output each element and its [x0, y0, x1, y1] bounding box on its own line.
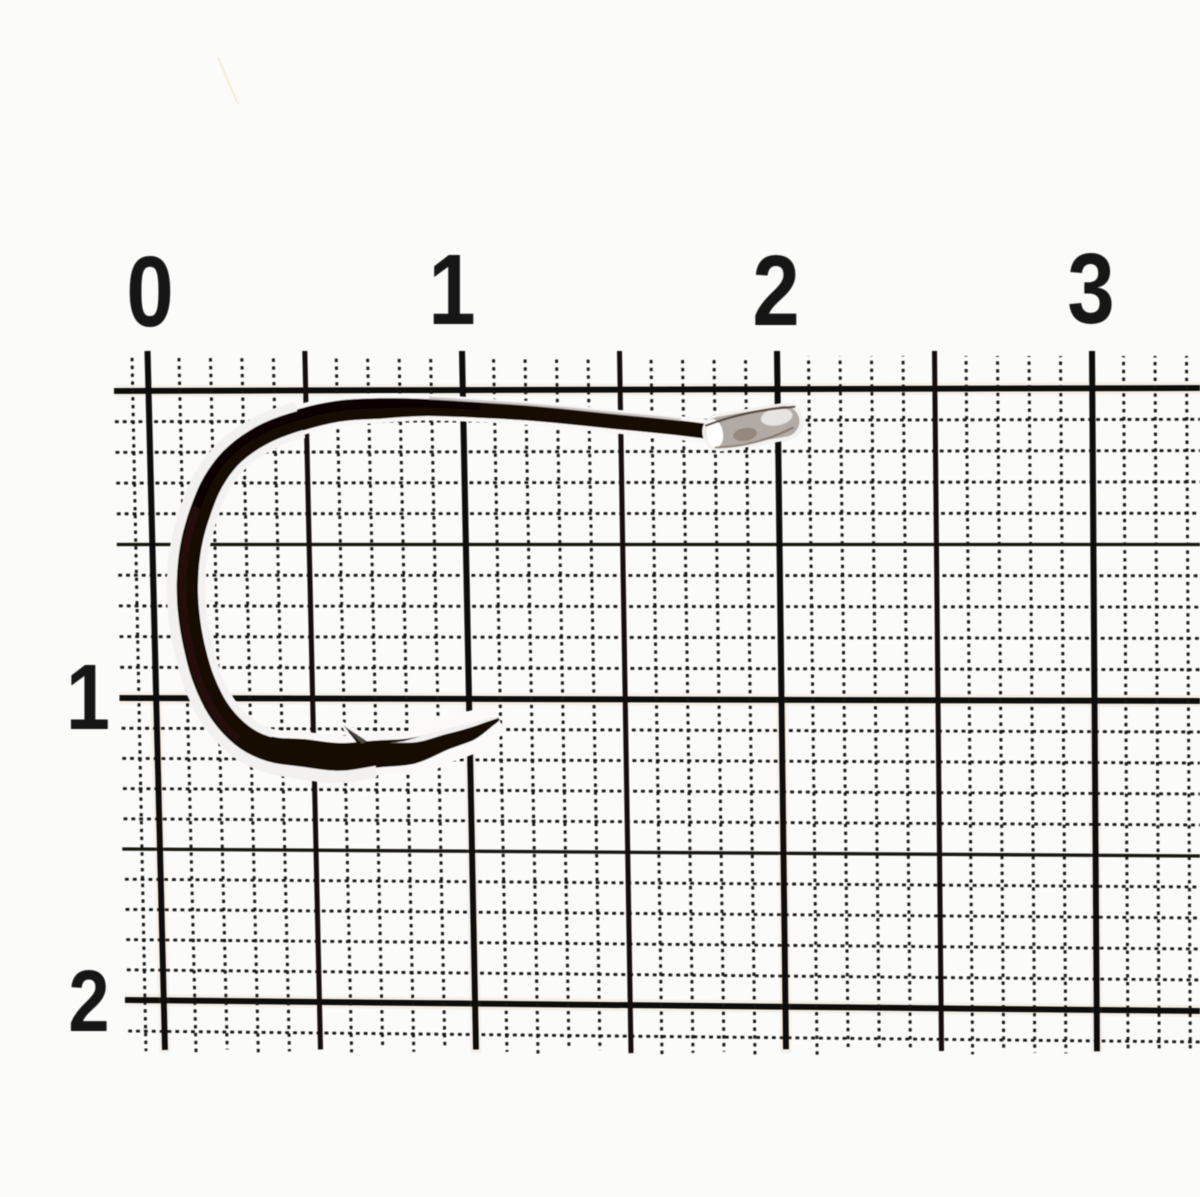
svg-text:1: 1: [428, 233, 475, 345]
svg-text:2: 2: [68, 953, 109, 1050]
svg-text:1: 1: [66, 646, 110, 749]
svg-text:3: 3: [1067, 232, 1114, 344]
svg-text:2: 2: [752, 234, 799, 346]
svg-text:0: 0: [126, 235, 173, 347]
